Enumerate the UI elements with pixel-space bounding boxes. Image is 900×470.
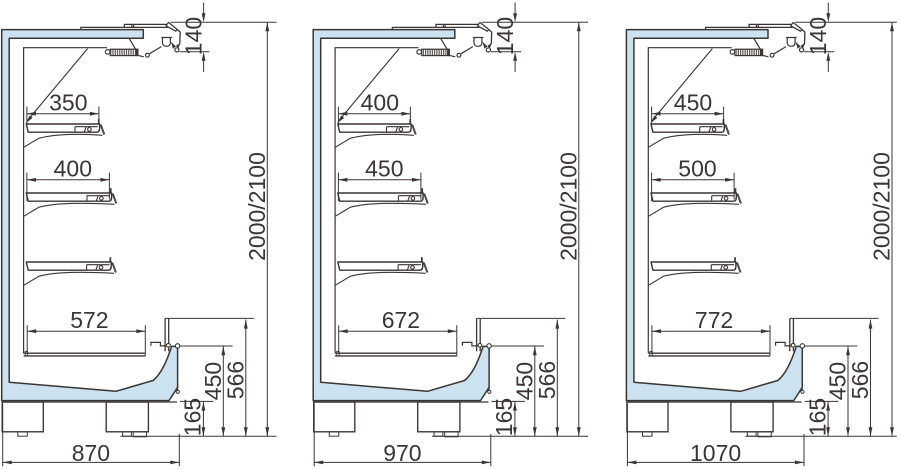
- svg-text:500: 500: [678, 156, 716, 182]
- svg-text:1070: 1070: [690, 440, 741, 466]
- svg-text:165: 165: [804, 398, 830, 436]
- svg-text:165: 165: [491, 398, 517, 436]
- svg-text:572: 572: [70, 307, 108, 333]
- svg-text:400: 400: [54, 156, 92, 182]
- svg-text:2000/2100: 2000/2100: [869, 152, 895, 261]
- svg-text:566: 566: [847, 361, 873, 399]
- svg-text:2000/2100: 2000/2100: [555, 152, 581, 261]
- svg-text:140: 140: [492, 17, 518, 55]
- svg-text:140: 140: [180, 17, 206, 55]
- svg-text:450: 450: [674, 90, 712, 116]
- svg-text:140: 140: [805, 17, 831, 55]
- svg-text:672: 672: [382, 307, 420, 333]
- svg-text:970: 970: [383, 440, 421, 466]
- svg-text:566: 566: [222, 361, 248, 399]
- svg-text:772: 772: [695, 307, 733, 333]
- svg-text:2000/2100: 2000/2100: [244, 152, 270, 261]
- svg-text:400: 400: [361, 90, 399, 116]
- svg-text:350: 350: [49, 90, 87, 116]
- svg-text:450: 450: [365, 156, 403, 182]
- svg-text:165: 165: [180, 398, 206, 436]
- svg-text:870: 870: [72, 440, 110, 466]
- svg-text:566: 566: [534, 361, 560, 399]
